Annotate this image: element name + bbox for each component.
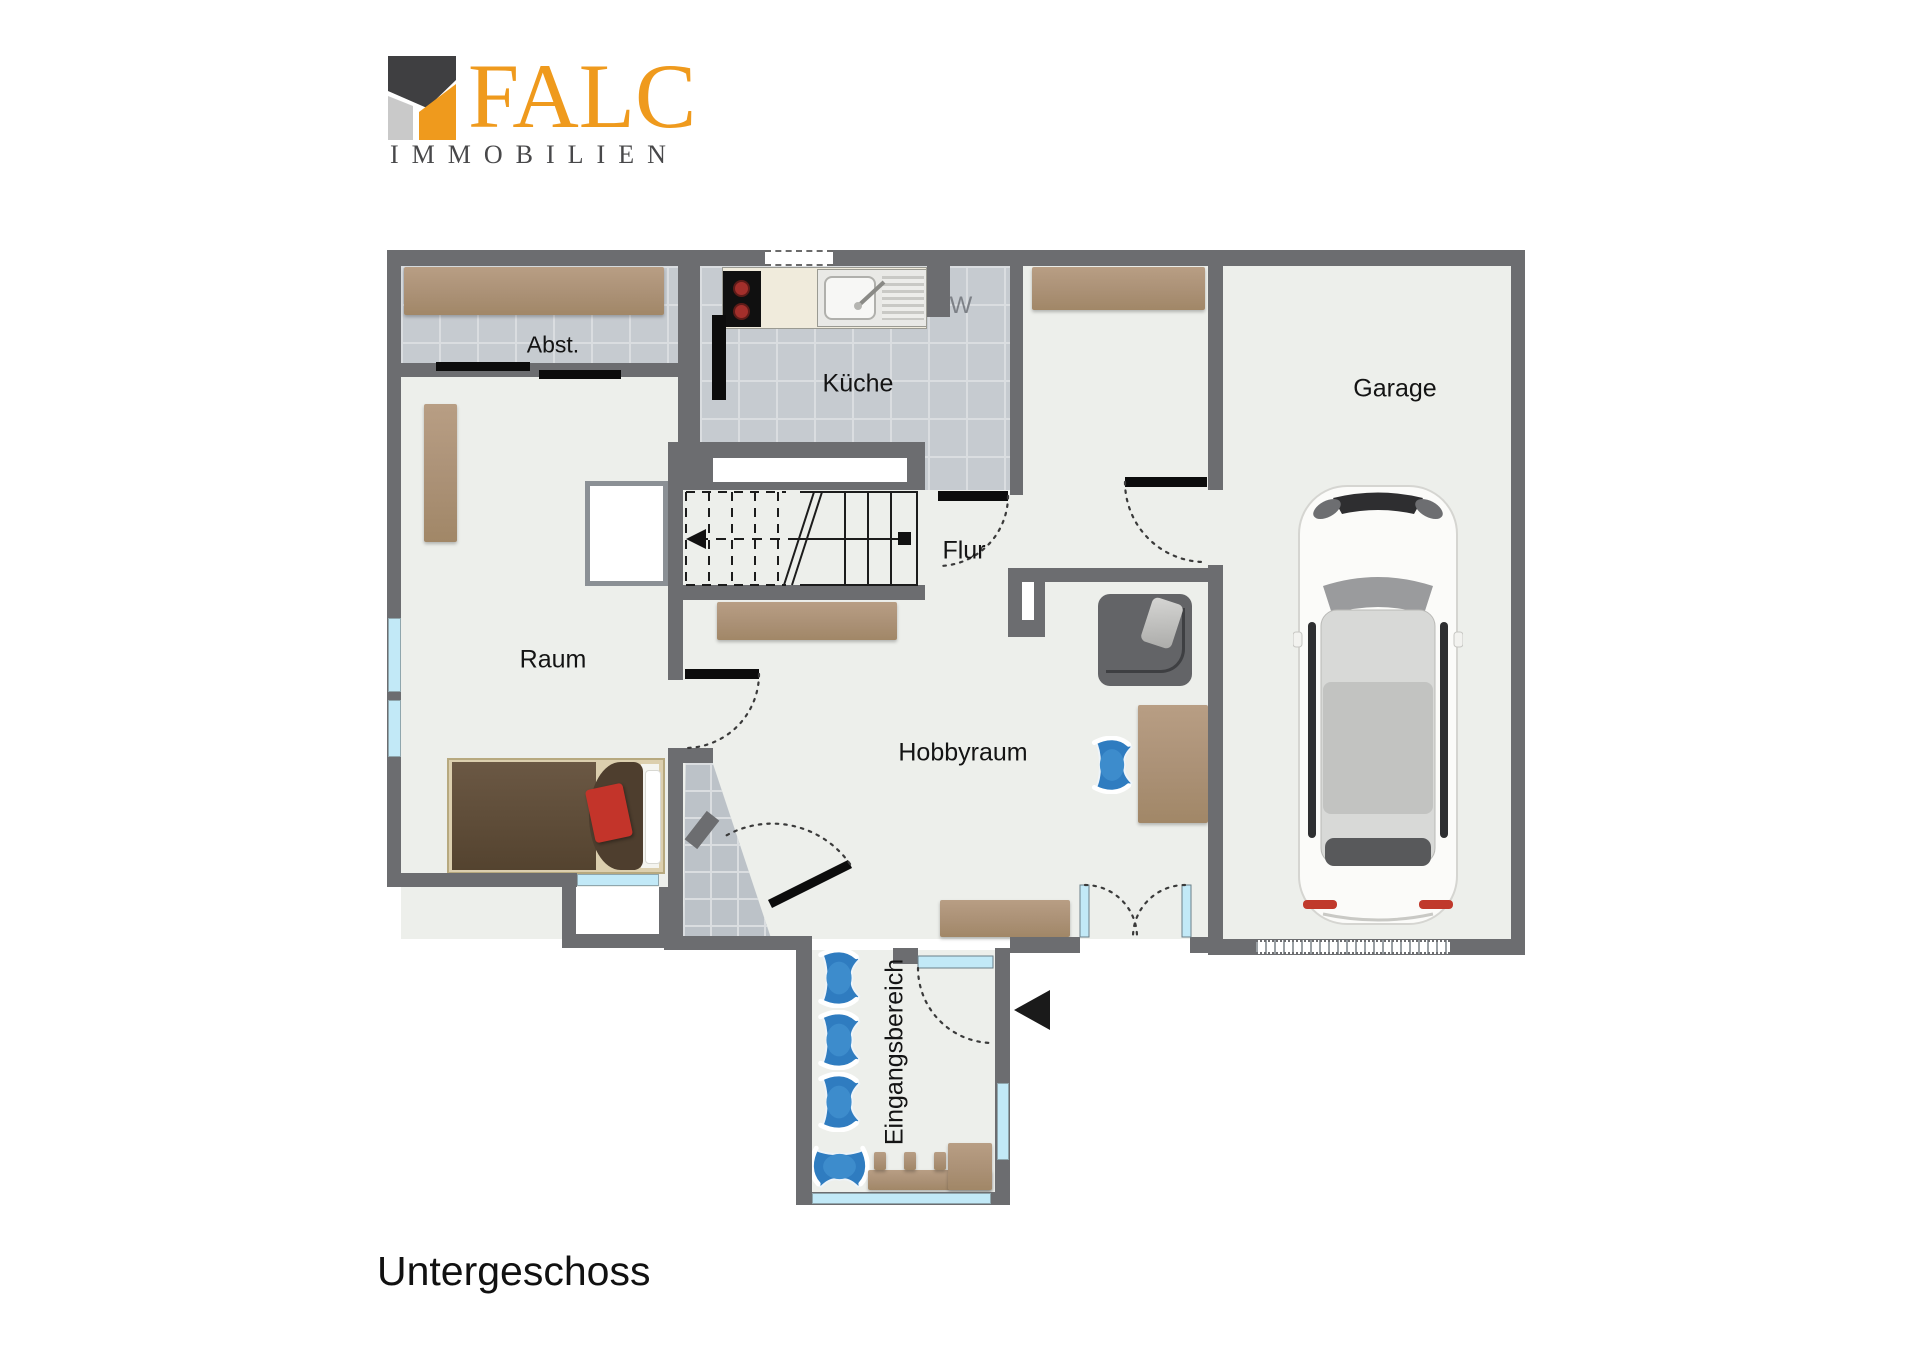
window-porch-right (997, 1083, 1009, 1160)
wall-garage-left-top (1208, 265, 1223, 490)
wall-porch-left (796, 948, 812, 1205)
wall-left (387, 266, 401, 887)
entrance-step-tooth-1 (874, 1152, 886, 1170)
room-label-eingangsbereich: Eingangsbereich (881, 959, 910, 1145)
window-raum-bottom (577, 874, 659, 886)
wall-garage-right (1511, 250, 1525, 955)
entrance-step-tooth-2 (904, 1152, 916, 1170)
wall-vestibule-left (668, 763, 683, 936)
wall-kitchen-left (678, 265, 700, 442)
wall-hobby-bottom-a (1010, 937, 1080, 953)
wall-stair-bottom (668, 585, 925, 600)
entrance-steps-tall (948, 1143, 992, 1190)
kitchen-tall-unit (712, 315, 726, 400)
kitchen-high-window (765, 250, 833, 266)
floorplan-page: FALC IMMOBILIEN (0, 0, 1920, 1357)
chimney-flue-opening (1022, 582, 1034, 620)
hobby-sideboard (940, 900, 1070, 937)
hobby-desk (1138, 705, 1208, 823)
car (1293, 482, 1463, 937)
abst-shelf (404, 267, 664, 315)
room-label-hobbyraum: Hobbyraum (898, 739, 1027, 768)
window-raum-left-upper (388, 618, 401, 692)
wall-vestibule-bottom (664, 936, 812, 950)
wall-lightwell-bottom (562, 934, 673, 948)
wall-kitchen-right (1010, 265, 1023, 495)
storeroom-shelf (1032, 267, 1205, 310)
bed (447, 758, 665, 874)
window-raum-left-lower (388, 700, 401, 757)
porch-chair-3 (810, 1072, 868, 1137)
raum-wardrobe (424, 404, 457, 542)
floor-title: Untergeschoss (377, 1248, 650, 1295)
sofa (1098, 594, 1192, 686)
wall-flur-hobby (1045, 568, 1223, 582)
room-label-kueche: Küche (823, 370, 894, 399)
falc-logo-mark-icon (388, 56, 460, 142)
garage-door (1256, 940, 1450, 954)
entrance-step-tooth-3 (934, 1152, 946, 1170)
kitchen-sink-basin (824, 276, 876, 320)
wall-raum-right (668, 585, 683, 680)
bed-blanket (452, 762, 596, 870)
stair-passthrough-opening (713, 458, 907, 482)
falc-logo-subtitle: IMMOBILIEN (390, 140, 679, 170)
wall-porch-right (995, 948, 1010, 1205)
room-label-garage: Garage (1353, 375, 1436, 404)
cooktop-burner-2 (733, 303, 750, 320)
wall-hobby-bottom-b (1190, 937, 1223, 953)
storage-niche (585, 481, 668, 586)
wall-garage-left-bottom (1208, 565, 1223, 955)
entrance-arrow-icon (1014, 990, 1050, 1030)
room-label-flur: Flur (942, 537, 985, 566)
window-porch-bottom (812, 1193, 991, 1204)
wall-top (387, 250, 1525, 266)
washing-machine-marker: W (950, 292, 973, 320)
kitchen-drainboard (882, 276, 924, 320)
lightwell (576, 887, 659, 934)
bed-pillow-white (645, 770, 661, 864)
wall-stairwell-left (668, 490, 683, 586)
wall-raum-bottom (387, 873, 577, 887)
wall-kitchen-w-stub (927, 265, 950, 317)
room-label-raum: Raum (520, 646, 587, 675)
wall-abst-bottom (387, 363, 700, 377)
cooktop-burner-1 (733, 280, 750, 297)
room-label-abst: Abst. (527, 332, 579, 359)
stair-sideboard (717, 602, 897, 640)
wall-vestibule-corner (668, 748, 713, 763)
porch-chair-1 (810, 948, 868, 1013)
porch-chair-2 (810, 1010, 868, 1075)
falc-logo-name: FALC (468, 50, 696, 142)
falc-logo (388, 56, 460, 147)
porch-chair-4 (805, 1138, 870, 1196)
office-chair (1084, 736, 1140, 799)
